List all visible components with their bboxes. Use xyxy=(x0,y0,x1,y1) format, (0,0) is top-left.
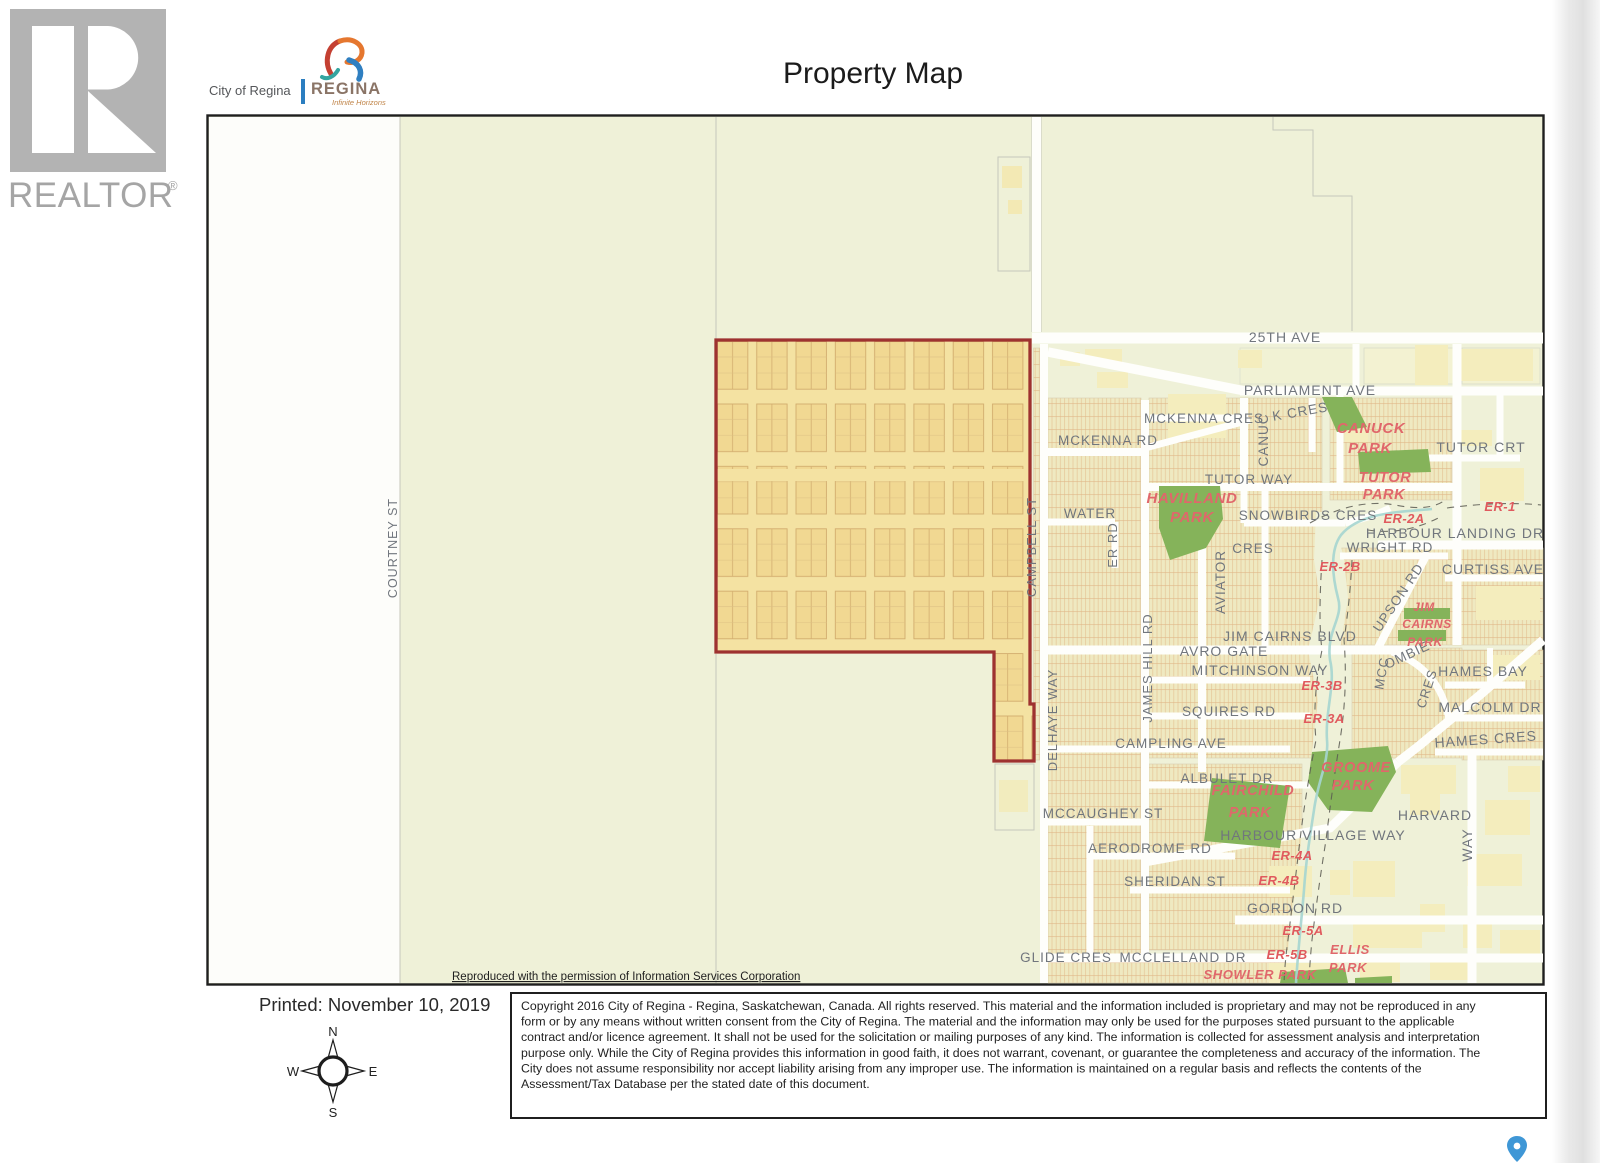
svg-text:ER-2A: ER-2A xyxy=(1383,511,1424,526)
svg-text:SHOWLER PARK: SHOWLER PARK xyxy=(1203,967,1317,982)
svg-text:ER-4B: ER-4B xyxy=(1258,873,1299,888)
svg-text:MITCHINSON WAY: MITCHINSON WAY xyxy=(1192,662,1329,678)
svg-text:PARK: PARK xyxy=(1170,509,1214,526)
svg-text:Assessment/Tax Database per th: Assessment/Tax Database per the stated d… xyxy=(521,1077,870,1091)
svg-text:GROOME: GROOME xyxy=(1321,760,1391,776)
svg-text:AERODROME RD: AERODROME RD xyxy=(1088,841,1212,856)
svg-text:PARLIAMENT AVE: PARLIAMENT AVE xyxy=(1244,382,1376,398)
svg-text:purpose only. While the City o: purpose only. While the City of Regina p… xyxy=(521,1046,1480,1060)
svg-text:Copyright 2016 City of Regina: Copyright 2016 City of Regina - Regina, … xyxy=(521,999,1477,1013)
svg-text:SQUIRES RD: SQUIRES RD xyxy=(1182,704,1276,719)
svg-text:N: N xyxy=(328,1024,337,1039)
svg-text:REALTOR: REALTOR xyxy=(8,176,174,215)
svg-text:Infinite Horizons: Infinite Horizons xyxy=(332,98,386,107)
svg-text:WATER: WATER xyxy=(1064,506,1116,521)
svg-text:S: S xyxy=(329,1105,338,1120)
svg-text:contract and/or licence agreem: contract and/or licence agreement. It sh… xyxy=(521,1030,1480,1044)
svg-text:City does not assume responsib: City does not assume responsibility nor … xyxy=(521,1061,1422,1075)
svg-text:ER-3B: ER-3B xyxy=(1301,678,1342,693)
svg-text:GORDON RD: GORDON RD xyxy=(1247,900,1343,916)
svg-text:AVRO GATE: AVRO GATE xyxy=(1180,643,1269,659)
svg-text:CANUC: CANUC xyxy=(1256,413,1271,466)
svg-text:ER-2B: ER-2B xyxy=(1319,559,1360,574)
svg-text:HARVARD: HARVARD xyxy=(1398,807,1472,823)
svg-text:MALCOLM DR: MALCOLM DR xyxy=(1438,699,1541,715)
svg-text:HARBOUR LANDING DR: HARBOUR LANDING DR xyxy=(1366,525,1544,541)
svg-text:AVIATOR: AVIATOR xyxy=(1213,550,1228,614)
svg-text:CANUCK: CANUCK xyxy=(1337,420,1406,437)
svg-text:PARK: PARK xyxy=(1363,487,1406,503)
svg-text:DELHAYE WAY: DELHAYE WAY xyxy=(1045,669,1060,772)
svg-text:PARK: PARK xyxy=(1332,778,1375,794)
svg-text:MCKENNA CRES: MCKENNA CRES xyxy=(1144,411,1264,426)
svg-text:CAMPLING AVE: CAMPLING AVE xyxy=(1115,736,1227,751)
svg-text:WRIGHT RD: WRIGHT RD xyxy=(1347,540,1434,555)
svg-text:ER-1: ER-1 xyxy=(1484,499,1515,514)
svg-text:WAY: WAY xyxy=(1459,828,1475,861)
svg-text:E: E xyxy=(369,1064,378,1079)
svg-text:ER-4A: ER-4A xyxy=(1271,848,1312,863)
svg-text:ELLIS: ELLIS xyxy=(1330,942,1370,957)
svg-text:HAVILLAND: HAVILLAND xyxy=(1147,490,1238,507)
svg-text:GLIDE CRES: GLIDE CRES xyxy=(1020,950,1112,965)
svg-text:CURTISS AVE: CURTISS AVE xyxy=(1442,561,1544,577)
svg-text:ER-3A: ER-3A xyxy=(1303,711,1344,726)
svg-text:MCCAUGHEY ST: MCCAUGHEY ST xyxy=(1043,806,1164,821)
svg-text:Property Map: Property Map xyxy=(783,57,963,90)
svg-text:Printed: November 10, 2019: Printed: November 10, 2019 xyxy=(259,994,490,1015)
svg-text:Reproduced with the permission: Reproduced with the permission of Inform… xyxy=(452,971,800,983)
svg-text:JIM CAIRNS BLVD: JIM CAIRNS BLVD xyxy=(1223,628,1357,644)
svg-text:TUTOR WAY: TUTOR WAY xyxy=(1205,472,1293,487)
svg-text:MCKENNA RD: MCKENNA RD xyxy=(1058,433,1158,448)
svg-text:TUTOR: TUTOR xyxy=(1359,470,1412,486)
svg-text:PARK: PARK xyxy=(1348,440,1392,457)
svg-text:TUTOR CRT: TUTOR CRT xyxy=(1436,439,1525,455)
svg-text:City of Regina: City of Regina xyxy=(209,83,291,98)
svg-text:CRES: CRES xyxy=(1232,541,1274,556)
svg-text:PARK: PARK xyxy=(1407,635,1443,649)
svg-text:25TH AVE: 25TH AVE xyxy=(1249,329,1321,345)
svg-text:CAMPBELL ST: CAMPBELL ST xyxy=(1024,497,1039,597)
svg-text:SNOWBIRDS CRES: SNOWBIRDS CRES xyxy=(1239,508,1378,523)
svg-text:MCCLELLAND DR: MCCLELLAND DR xyxy=(1119,950,1246,965)
svg-text:®: ® xyxy=(168,178,178,193)
svg-text:COURTNEY ST: COURTNEY ST xyxy=(386,498,400,598)
svg-text:ER-5A: ER-5A xyxy=(1282,923,1323,938)
svg-text:JAMES HILL RD: JAMES HILL RD xyxy=(1140,613,1155,722)
svg-text:ER RD: ER RD xyxy=(1105,522,1120,567)
svg-text:FAIRCHILD: FAIRCHILD xyxy=(1212,783,1295,799)
svg-text:SHERIDAN ST: SHERIDAN ST xyxy=(1124,874,1226,889)
svg-text:CAIRNS: CAIRNS xyxy=(1402,617,1452,631)
svg-text:PARK: PARK xyxy=(1229,805,1272,821)
svg-text:PARK: PARK xyxy=(1329,960,1368,975)
svg-text:ER-5B: ER-5B xyxy=(1266,947,1307,962)
svg-text:REGINA: REGINA xyxy=(311,80,381,98)
svg-text:W: W xyxy=(287,1064,300,1079)
svg-text:JIM: JIM xyxy=(1413,600,1435,614)
svg-text:HAMES BAY: HAMES BAY xyxy=(1438,663,1528,679)
svg-text:form or by any means without w: form or by any means without written con… xyxy=(521,1015,1455,1029)
svg-text:HARBOUR VILLAGE WAY: HARBOUR VILLAGE WAY xyxy=(1220,827,1405,843)
